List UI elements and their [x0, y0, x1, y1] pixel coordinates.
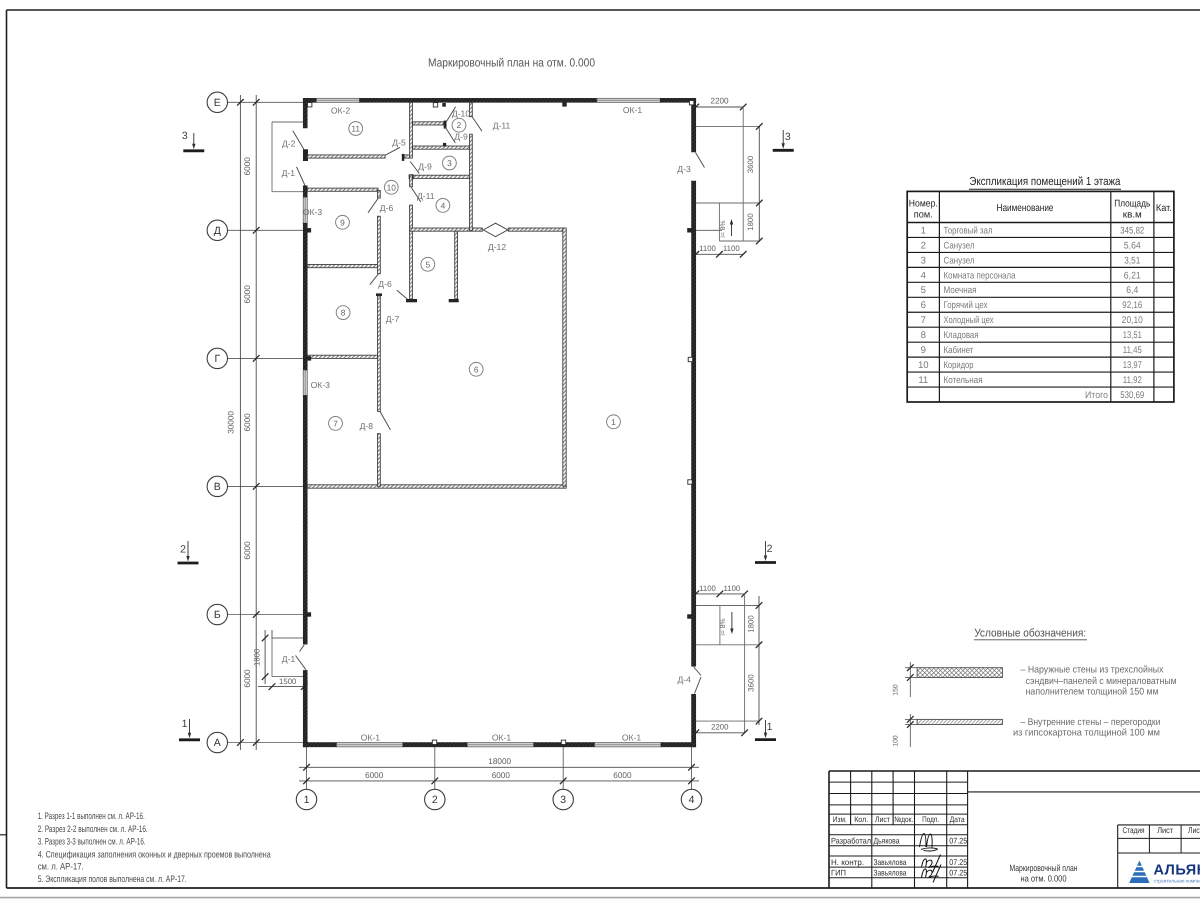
svg-text:строительная компания: строительная компания — [1154, 879, 1200, 884]
svg-text:АЛЬЯНС: АЛЬЯНС — [1154, 863, 1200, 879]
